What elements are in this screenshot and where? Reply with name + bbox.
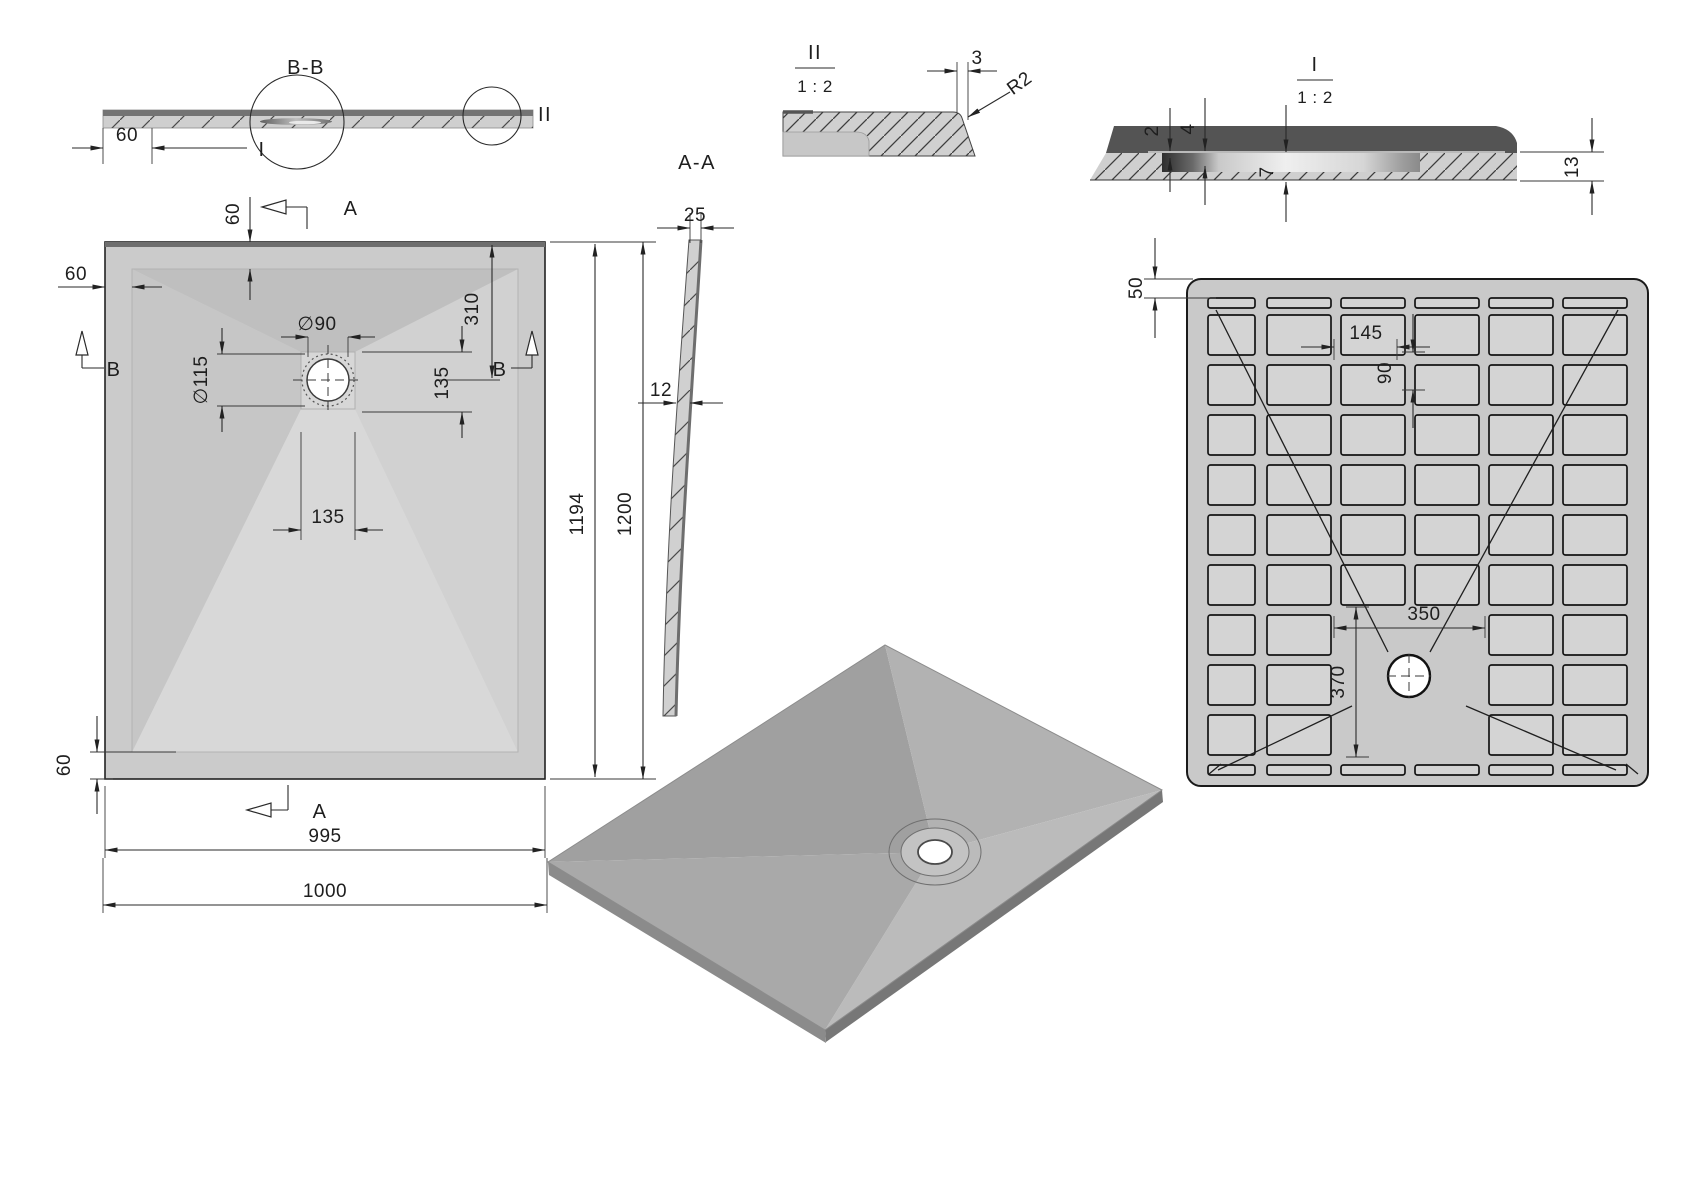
rib-cell [1563,415,1627,455]
rib-cell [1489,665,1553,705]
view-section-bb: B-B I II 60 [72,57,552,169]
rib-cell [1267,565,1331,605]
rib-cell [1208,298,1255,308]
rib-cell [1341,415,1405,455]
plan-dim-1000: 1000 [103,858,547,913]
rib-cell [1415,315,1479,355]
svg-text:310: 310 [462,292,483,325]
rib-cell [1563,665,1627,705]
detail-ii-scale: 1 : 2 [797,77,833,96]
detail-ii-dim-3: 3 [927,48,997,120]
svg-text:1000: 1000 [303,881,347,902]
rib-cell [1208,715,1255,755]
rib-cell [1489,765,1553,775]
svg-text:B: B [493,359,508,381]
view-bottom: 50 145 90 350 370 [1126,238,1648,786]
rib-cell [1267,615,1331,655]
plan-section-arrow-a-bottom: A [247,785,327,823]
plan-dim-1194-1200: 1194 1200 [550,242,656,779]
svg-text:60: 60 [223,203,244,225]
rib-cell [1415,365,1479,405]
rib-cell [1563,315,1627,355]
svg-text:A: A [313,801,328,823]
bb-drain-cover [289,121,321,125]
detail-i-top-surface [1106,126,1517,153]
rib-cell [1267,415,1331,455]
svg-text:A: A [344,198,359,220]
aa-dim-25: 25 [657,205,734,243]
detail-ii-title: II [808,42,822,64]
rib-cell [1489,315,1553,355]
detail-i-dim-13: 13 [1520,118,1604,215]
bb-top-surface [103,110,533,116]
rib-cell [1341,465,1405,505]
svg-text:R2: R2 [1003,68,1036,100]
rib-cell [1563,298,1627,308]
svg-text:145: 145 [1349,323,1382,344]
view-detail-ii: II 1 : 2 3 R2 [783,42,1036,156]
detail-i-title: I [1311,54,1318,76]
rib-cell [1563,765,1627,775]
rib-cell [1208,565,1255,605]
svg-text:90: 90 [1375,362,1396,384]
rib-cell [1267,365,1331,405]
svg-text:1200: 1200 [615,492,636,536]
svg-text:1194: 1194 [567,493,588,536]
svg-text:∅90: ∅90 [297,314,336,335]
plan-section-arrow-a-top: A [262,198,358,229]
rib-cell [1563,465,1627,505]
rib-cell [1208,765,1255,775]
svg-text:135: 135 [311,507,344,528]
view-detail-i: I 1 : 2 2 4 7 13 [1090,54,1604,222]
drawing-sheet: B-B I II 60 A [0,0,1697,1200]
rib-cell [1489,615,1553,655]
aa-title: A-A [678,152,716,174]
bb-detail-I-ref: I [258,139,265,161]
svg-text:4: 4 [1178,123,1199,134]
svg-text:60: 60 [65,264,87,285]
rib-cell [1489,715,1553,755]
view-isometric [548,645,1163,1043]
svg-text:3: 3 [971,48,982,69]
detail-ii-surface-layer [783,132,869,156]
bb-detail-II-ref: II [538,104,552,126]
rib-cell [1415,565,1479,605]
rib-cell [1267,315,1331,355]
detail-ii-radius-r2: R2 [968,68,1036,117]
rib-cell [1208,665,1255,705]
svg-text:50: 50 [1126,277,1147,299]
rib-cell [1415,415,1479,455]
rib-cell [1489,465,1553,505]
svg-text:60: 60 [116,125,138,146]
view-plan: A A B B 60 60 [54,197,656,913]
rib-cell [1415,765,1479,775]
view-section-aa: A-A 25 12 [638,152,734,716]
rib-cell [1563,565,1627,605]
svg-text:2: 2 [1142,125,1163,136]
svg-text:25: 25 [684,205,706,226]
rib-cell [1341,515,1405,555]
rib-cell [1489,515,1553,555]
svg-text:370: 370 [1328,665,1349,698]
detail-i-scale: 1 : 2 [1297,88,1333,107]
rib-cell [1267,665,1331,705]
rib-cell [1415,515,1479,555]
detail-i-drain-cover [1162,153,1420,172]
rib-cell [1341,765,1405,775]
rib-cell [1415,465,1479,505]
rib-cell [1208,365,1255,405]
iso-facet-upperleft [548,645,935,862]
svg-text:B: B [107,359,122,381]
rib-cell [1563,365,1627,405]
svg-text:13: 13 [1562,156,1583,178]
rib-cell [1563,715,1627,755]
rib-cell [1489,565,1553,605]
rib-cell [1563,515,1627,555]
rib-cell [1489,365,1553,405]
rib-cell [1563,615,1627,655]
rib-cell [1267,465,1331,505]
rib-cell [1489,415,1553,455]
rib-cell [1267,765,1331,775]
rib-cell [1208,615,1255,655]
svg-text:7: 7 [1257,166,1278,177]
cad-drawing: B-B I II 60 A [0,0,1697,1200]
rib-cell [1208,515,1255,555]
svg-text:350: 350 [1407,604,1440,625]
rib-cell [1208,415,1255,455]
rib-cell [1341,565,1405,605]
rib-cell [1489,298,1553,308]
rib-cell [1415,298,1479,308]
svg-text:12: 12 [650,380,672,401]
plan-top-edge [105,242,545,247]
bb-dim-60: 60 [72,125,247,164]
bb-title: B-B [287,57,325,79]
svg-text:995: 995 [308,826,341,847]
rib-cell [1208,315,1255,355]
svg-text:135: 135 [432,366,453,399]
rib-cell [1341,298,1405,308]
svg-text:60: 60 [54,754,75,776]
svg-text:∅115: ∅115 [191,356,212,405]
rib-cell [1208,465,1255,505]
rib-cell [1267,298,1331,308]
iso-drain-hole [918,840,952,864]
